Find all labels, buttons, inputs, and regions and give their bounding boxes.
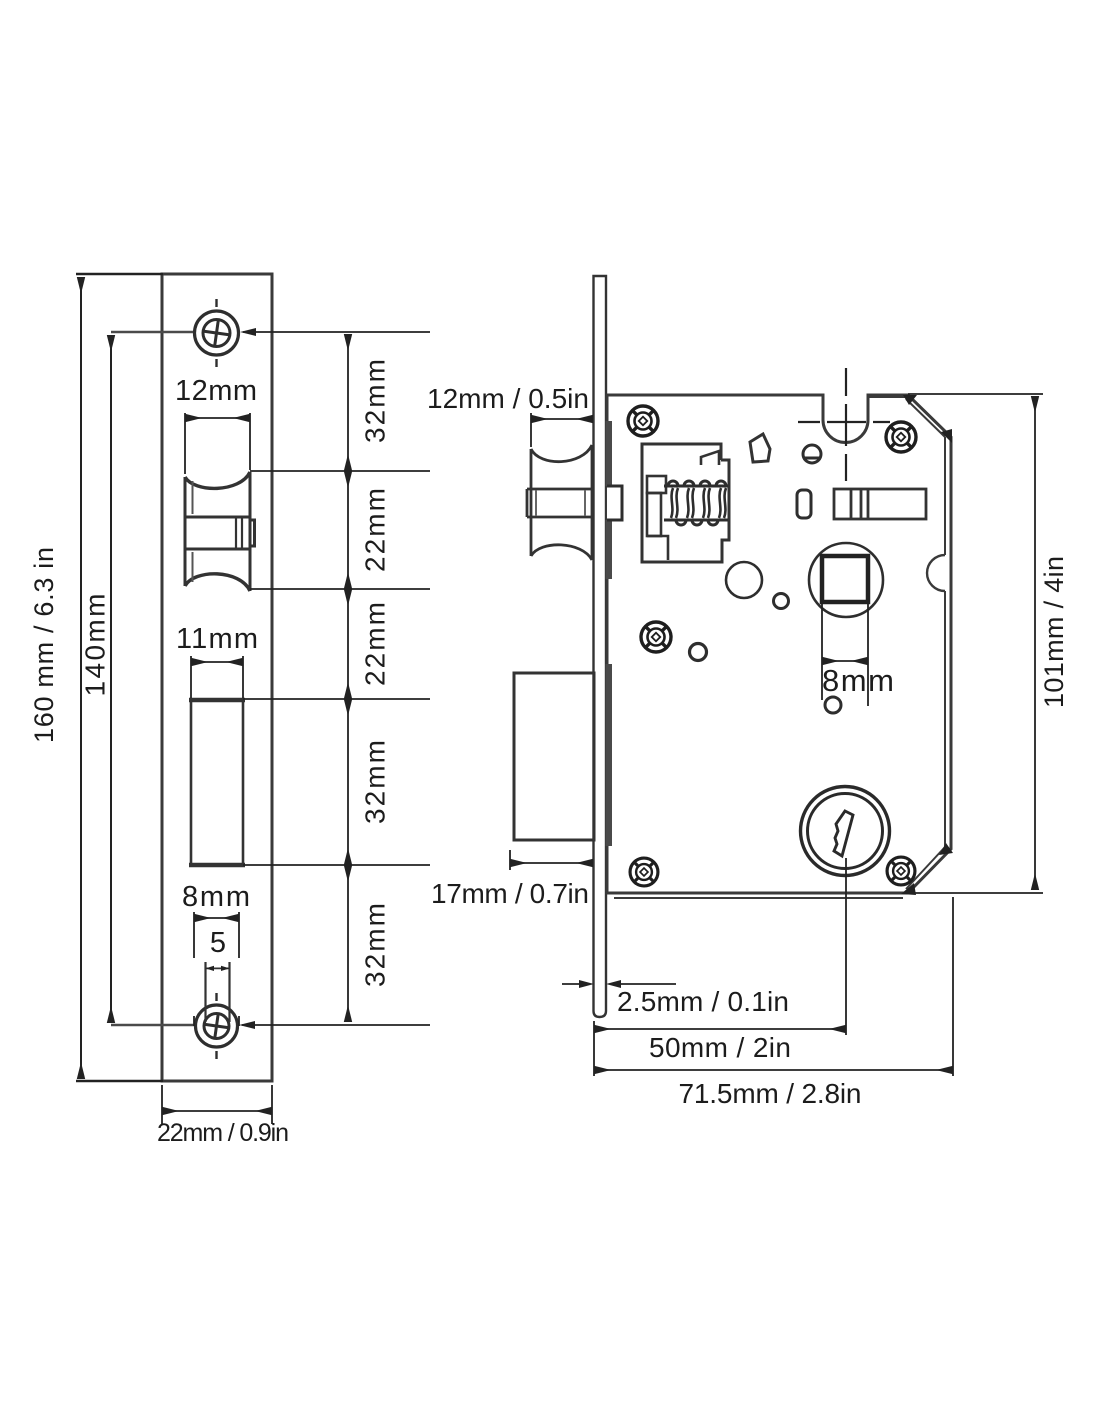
svg-text:101mm / 4in: 101mm / 4in bbox=[1039, 556, 1069, 708]
svg-text:12mm: 12mm bbox=[175, 375, 257, 407]
svg-text:50mm / 2in: 50mm / 2in bbox=[649, 1032, 791, 1063]
svg-text:17mm / 0.7in: 17mm / 0.7in bbox=[431, 878, 589, 909]
svg-text:140mm: 140mm bbox=[79, 594, 110, 697]
svg-text:12mm / 0.5in: 12mm / 0.5in bbox=[427, 383, 589, 414]
svg-text:71.5mm / 2.8in: 71.5mm / 2.8in bbox=[679, 1078, 862, 1109]
svg-text:22mm / 0.9in: 22mm / 0.9in bbox=[157, 1119, 289, 1147]
svg-text:8mm: 8mm bbox=[822, 663, 894, 698]
svg-text:32mm: 32mm bbox=[359, 903, 390, 987]
svg-text:2.5mm / 0.1in: 2.5mm / 0.1in bbox=[617, 986, 789, 1017]
svg-text:32mm: 32mm bbox=[359, 740, 390, 824]
svg-text:160 mm / 6.3 in: 160 mm / 6.3 in bbox=[29, 547, 59, 743]
svg-text:8mm: 8mm bbox=[182, 881, 250, 913]
svg-text:22mm: 22mm bbox=[359, 488, 390, 572]
svg-text:5: 5 bbox=[210, 927, 226, 959]
svg-text:32mm: 32mm bbox=[359, 359, 390, 443]
svg-text:22mm: 22mm bbox=[359, 602, 390, 686]
svg-text:11mm: 11mm bbox=[176, 623, 258, 655]
